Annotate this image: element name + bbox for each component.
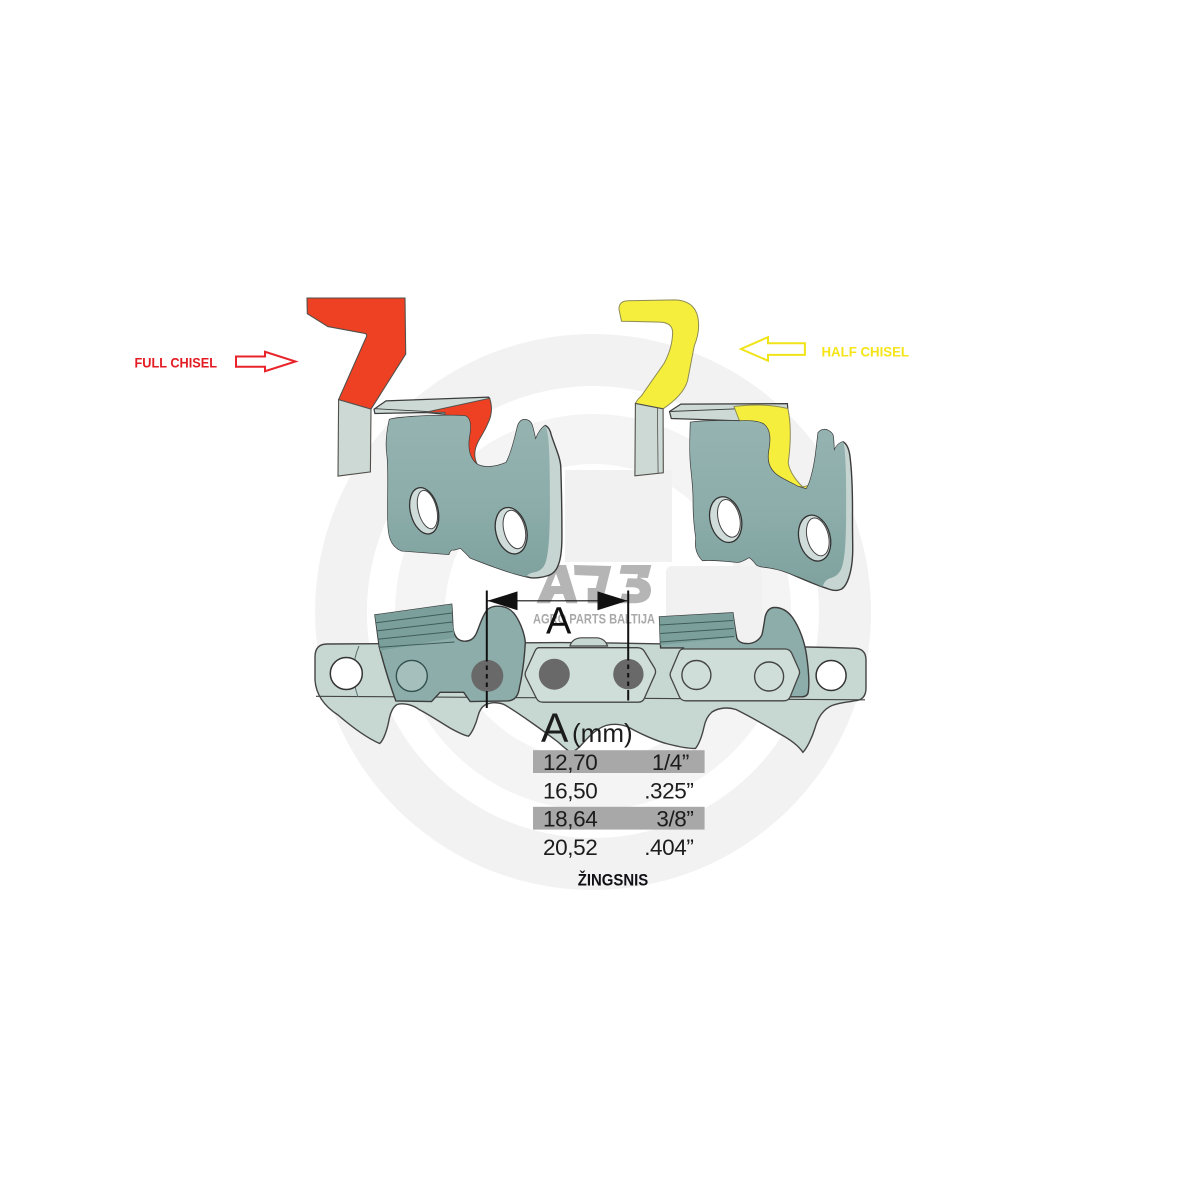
svg-text:18,64: 18,64 xyxy=(543,806,597,831)
svg-text:FULL CHISEL: FULL CHISEL xyxy=(135,354,218,370)
svg-text:20,52: 20,52 xyxy=(543,835,597,860)
svg-text:3/8”: 3/8” xyxy=(656,806,693,831)
svg-text:ŽINGSNIS: ŽINGSNIS xyxy=(578,871,649,890)
svg-text:12,70: 12,70 xyxy=(543,750,597,775)
svg-text:16,50: 16,50 xyxy=(543,778,597,803)
svg-text:A: A xyxy=(546,601,572,643)
svg-text:A: A xyxy=(541,705,569,751)
svg-text:(mm): (mm) xyxy=(572,718,633,748)
svg-text:HALF CHISEL: HALF CHISEL xyxy=(822,344,910,360)
svg-text:1/4”: 1/4” xyxy=(652,750,689,775)
svg-text:.404”: .404” xyxy=(644,835,693,860)
svg-text:.325”: .325” xyxy=(644,778,693,803)
